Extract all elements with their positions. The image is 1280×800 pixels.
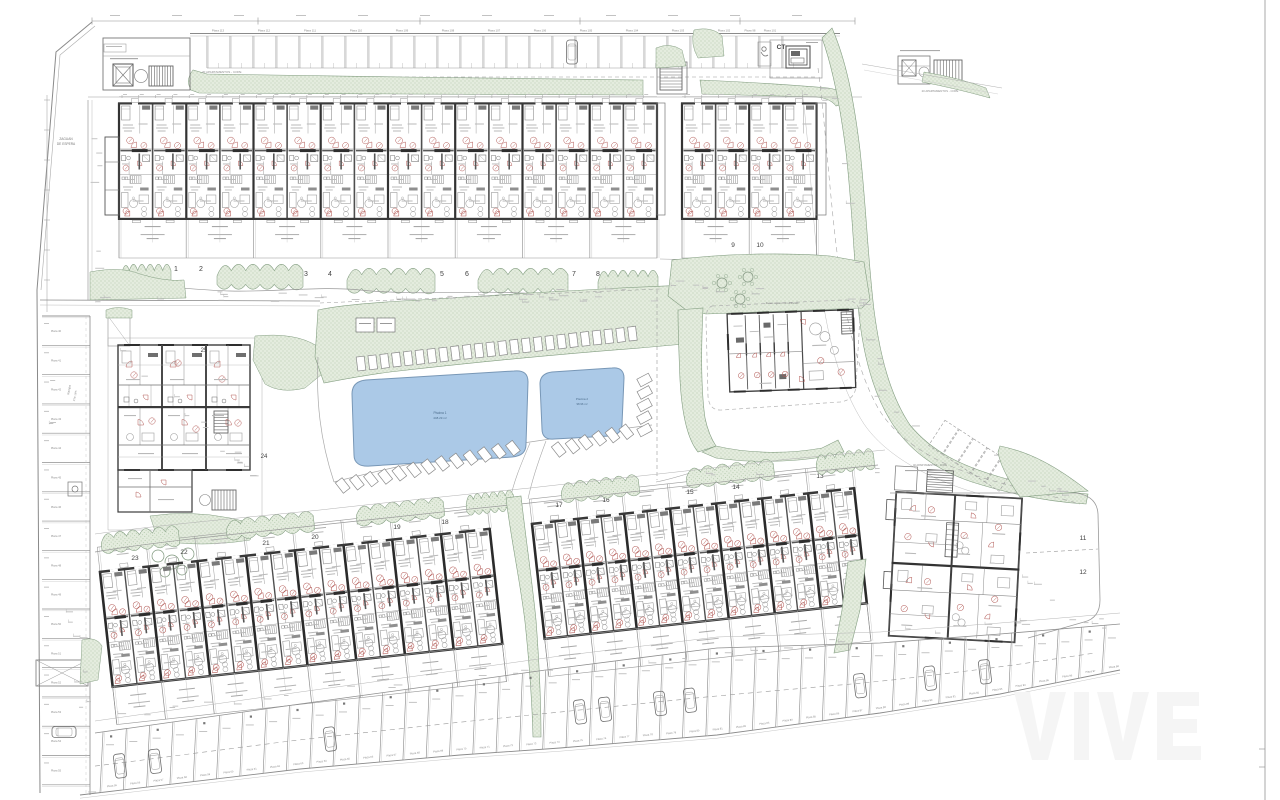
svg-text:15: 15 xyxy=(686,489,694,496)
svg-text:Plaza 104: Plaza 104 xyxy=(626,29,639,33)
svg-text:448.29 m²: 448.29 m² xyxy=(433,416,447,420)
svg-text:Plaza 101: Plaza 101 xyxy=(764,29,777,33)
svg-text:Plaza 48: Plaza 48 xyxy=(51,563,62,567)
svg-text:40 APARTAMENTOS - COPE: 40 APARTAMENTOS - COPE xyxy=(913,463,947,467)
svg-text:Plaza 49: Plaza 49 xyxy=(51,593,62,597)
svg-text:6: 6 xyxy=(465,271,469,278)
svg-text:21: 21 xyxy=(262,540,270,547)
svg-text:Plaza 47: Plaza 47 xyxy=(51,534,62,538)
svg-text:20: 20 xyxy=(311,534,319,541)
svg-text:Plaza 54: Plaza 54 xyxy=(51,739,62,743)
svg-text:Zonas aguas comunitarias: Zonas aguas comunitarias xyxy=(766,301,799,305)
svg-text:Plaza 102: Plaza 102 xyxy=(718,29,731,33)
svg-text:23: 23 xyxy=(131,555,139,562)
svg-text:Piscina 1: Piscina 1 xyxy=(434,411,447,415)
svg-text:Plaza 51: Plaza 51 xyxy=(51,651,62,655)
svg-text:Plaza 107: Plaza 107 xyxy=(488,29,501,33)
svg-text:20 APARTAMENTOS - COPE: 20 APARTAMENTOS - COPE xyxy=(202,70,241,74)
svg-text:Plaza 103: Plaza 103 xyxy=(672,29,685,33)
svg-text:12: 12 xyxy=(1079,569,1087,576)
svg-text:18: 18 xyxy=(441,519,449,526)
svg-text:Plaza 111: Plaza 111 xyxy=(304,29,316,33)
svg-text:98.96 m²: 98.96 m² xyxy=(576,402,587,406)
svg-text:10: 10 xyxy=(756,242,764,249)
svg-text:Plaza 45: Plaza 45 xyxy=(51,476,62,480)
svg-text:CT: CT xyxy=(777,44,786,51)
svg-text:Plaza 41: Plaza 41 xyxy=(51,358,62,362)
svg-text:Plaza 105: Plaza 105 xyxy=(580,29,593,33)
svg-text:24: 24 xyxy=(261,454,268,460)
svg-text:Plaza 44: Plaza 44 xyxy=(51,446,62,450)
svg-text:25: 25 xyxy=(201,348,208,354)
svg-text:19: 19 xyxy=(393,524,401,531)
svg-text:14: 14 xyxy=(732,484,740,491)
svg-text:Plaza 98: Plaza 98 xyxy=(745,29,756,33)
svg-text:20 APARTAMENTOS - COPE: 20 APARTAMENTOS - COPE xyxy=(922,89,959,93)
svg-text:DE ESPERA: DE ESPERA xyxy=(57,142,76,146)
svg-text:Plaza 50: Plaza 50 xyxy=(51,622,62,626)
svg-text:Plaza 43: Plaza 43 xyxy=(51,417,62,421)
svg-text:1: 1 xyxy=(174,266,178,273)
svg-text:ZAGUAN: ZAGUAN xyxy=(59,137,73,141)
svg-text:Plaza 109: Plaza 109 xyxy=(396,29,409,33)
svg-text:9: 9 xyxy=(731,242,735,249)
svg-text:Plaza 113: Plaza 113 xyxy=(212,29,225,33)
svg-text:Plaza 112: Plaza 112 xyxy=(258,29,271,33)
svg-text:Plaza 108: Plaza 108 xyxy=(442,29,455,33)
svg-text:Plaza 53: Plaza 53 xyxy=(51,710,62,714)
svg-text:4: 4 xyxy=(328,271,332,278)
svg-text:Plaza 106: Plaza 106 xyxy=(534,29,547,33)
svg-text:5: 5 xyxy=(440,271,444,278)
svg-text:3: 3 xyxy=(304,271,308,278)
svg-text:Plaza 46: Plaza 46 xyxy=(51,505,62,509)
svg-text:Piscina 2: Piscina 2 xyxy=(576,397,589,401)
svg-text:Plaza 52: Plaza 52 xyxy=(51,681,62,685)
svg-text:Plaza 55: Plaza 55 xyxy=(51,769,62,773)
svg-text:2: 2 xyxy=(199,266,203,273)
svg-text:17: 17 xyxy=(555,502,563,509)
svg-text:7: 7 xyxy=(572,271,576,278)
svg-text:Plaza 110: Plaza 110 xyxy=(350,29,363,33)
svg-text:Plaza 40: Plaza 40 xyxy=(51,329,62,333)
svg-text:22: 22 xyxy=(180,549,188,556)
svg-text:11: 11 xyxy=(1080,535,1087,542)
svg-text:Plaza 42: Plaza 42 xyxy=(51,388,62,392)
